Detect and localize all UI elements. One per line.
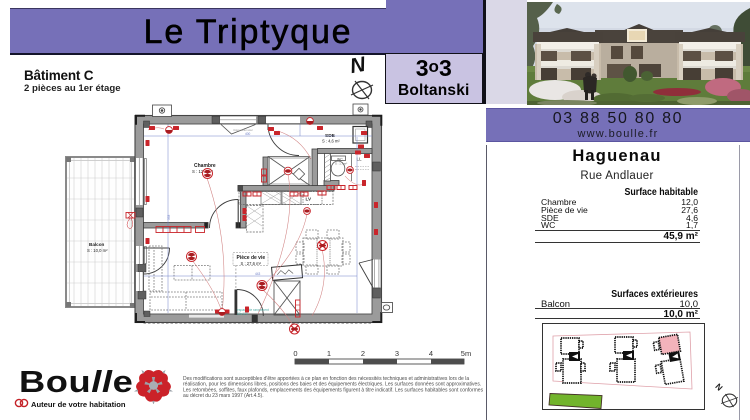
- svg-text:2: 2: [361, 349, 365, 358]
- svg-text:N: N: [713, 381, 724, 392]
- svg-text:Volet roulant elec: Volet roulant elec: [233, 128, 254, 132]
- svg-text:5m: 5m: [461, 349, 471, 358]
- svg-text:Balcon: Balcon: [89, 242, 105, 247]
- svg-text:N: N: [348, 53, 368, 78]
- svg-text:333: 333: [167, 214, 171, 220]
- svg-text:3: 3: [395, 349, 399, 358]
- svg-text:1: 1: [327, 349, 331, 358]
- svg-text:0: 0: [293, 349, 297, 358]
- svg-text:S : 4,6 m²: S : 4,6 m²: [322, 139, 340, 144]
- svg-text:LV: LV: [306, 197, 312, 202]
- svg-text:S : 10,0 m²: S : 10,0 m²: [87, 248, 108, 253]
- svg-text:S : 27,6 m²: S : 27,6 m²: [241, 261, 262, 266]
- svg-text:443: 443: [255, 272, 261, 276]
- svg-text:60x120: 60x120: [237, 312, 248, 316]
- svg-text:S : 1,7 m²: S : 1,7 m²: [335, 162, 347, 166]
- svg-text:LL: LL: [357, 157, 363, 162]
- svg-text:4: 4: [429, 349, 433, 358]
- svg-text:400: 400: [245, 132, 251, 136]
